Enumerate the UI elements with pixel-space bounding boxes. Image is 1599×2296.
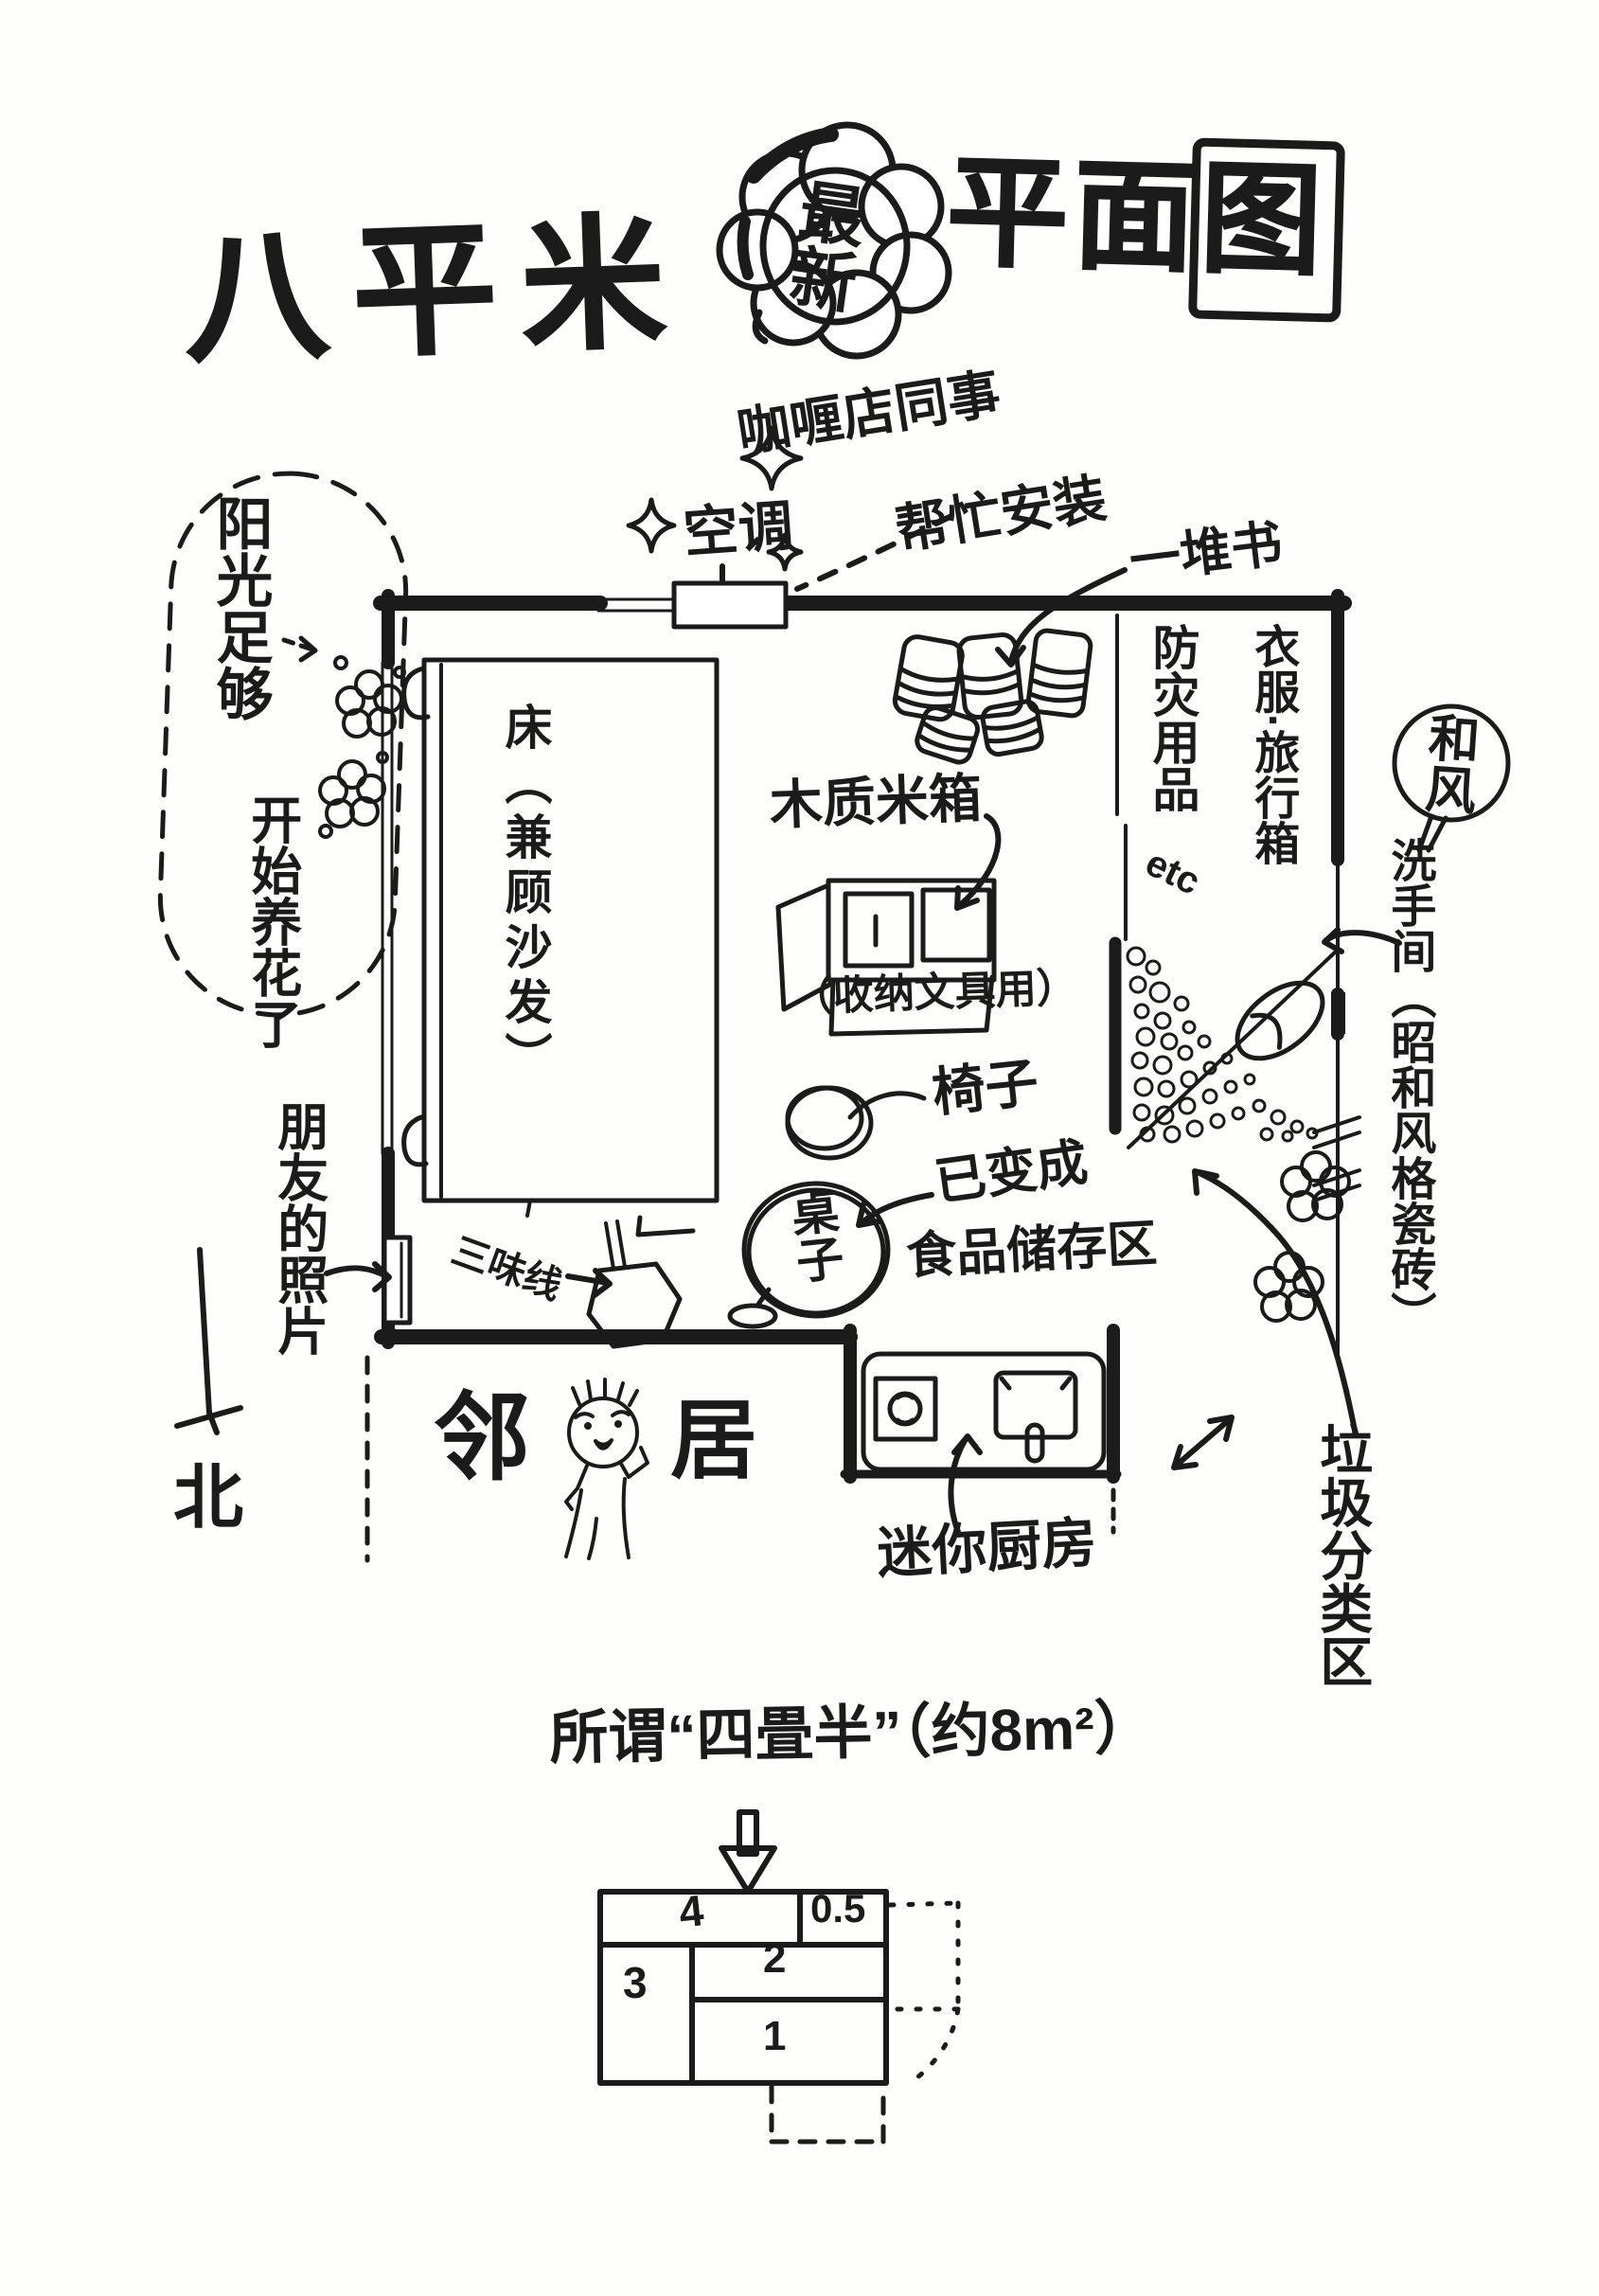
tatami-value-4: 4	[677, 1887, 706, 1935]
chair-shape	[788, 1088, 924, 1158]
table-label: 桌子	[784, 1186, 844, 1286]
shamisen-shape	[568, 1221, 680, 1346]
table-note-line2: 食品储存区	[905, 1218, 1159, 1283]
photo-frame-shape	[327, 1237, 410, 1323]
washroom-label: 洗手间（昭和风格瓷砖）	[1384, 837, 1431, 1337]
page-title-main: 八平米	[182, 207, 692, 376]
neighbor-label-right: 居	[670, 1396, 757, 1487]
bed-shape	[404, 660, 717, 1235]
entrance-double-arrow	[1174, 1417, 1232, 1468]
hand-drawn-floorplan-page: 八平米 最新 平面图 咖喱店同事 帮忙安装 空调 一堆书 阳光足够 开始养花了 …	[0, 0, 1599, 2296]
mini-kitchen-label: 迷你厨房	[876, 1515, 1098, 1584]
tatami-value-1: 1	[763, 2015, 786, 2058]
page-title-suffix: 平面图	[945, 150, 1328, 287]
bed-label: 床（兼顾沙发）	[500, 703, 550, 1087]
closet-left-label: 防灾用品	[1147, 623, 1198, 812]
sunlight-note-line2: 开始养花了	[244, 793, 298, 1049]
tatami-value-3: 3	[623, 1960, 648, 2005]
tatami-heading: 所谓“四畳半”（约8m²）	[549, 1698, 1153, 1770]
rice-box-note: （收纳文具用）	[791, 967, 1077, 1020]
kitchen-unit-shape	[863, 1354, 1104, 1532]
closet-right-label: 衣服·旅行箱	[1248, 623, 1295, 865]
person-doodle	[566, 1379, 648, 1558]
bathroom-tiles	[1128, 948, 1317, 1142]
tatami-value-0-5: 0.5	[810, 1888, 865, 1930]
sunlight-note-line1: 阳光足够	[210, 494, 270, 721]
ac-unit-shape	[674, 583, 786, 627]
washroom-style-label: 和风	[1416, 710, 1477, 816]
books-pile-shape	[893, 630, 1092, 765]
garbage-area-arrow	[1195, 1171, 1356, 1435]
garbage-area-label: 垃圾分类区	[1314, 1422, 1370, 1687]
chair-label: 椅子	[930, 1055, 1041, 1121]
bathroom-door-block	[1331, 992, 1345, 1034]
north-label: 北	[173, 1461, 243, 1535]
air-conditioner-label: 空调	[682, 498, 795, 563]
north-arrow	[177, 1250, 240, 1433]
friends-photos-label: 朋友的照片	[271, 1100, 325, 1356]
tatami-value-2: 2	[763, 1937, 786, 1981]
neighbor-label-left: 邻	[434, 1388, 530, 1489]
bath-slipper-shape	[1224, 968, 1337, 1073]
rice-box-label: 木质米箱	[769, 771, 983, 834]
